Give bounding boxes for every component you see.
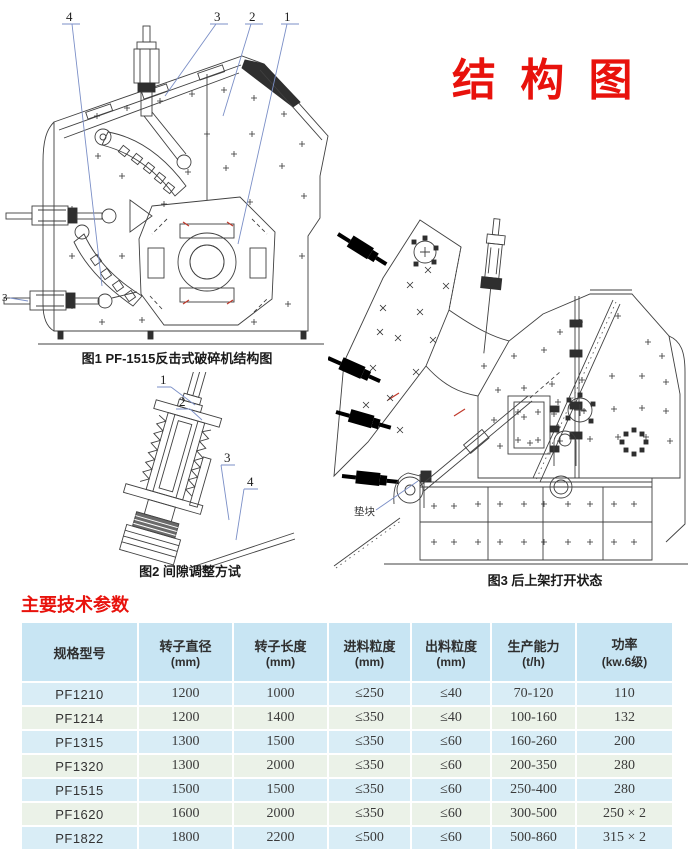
cell-model: PF1210 bbox=[22, 683, 137, 705]
figure3-open-frame-drawing: 垫块 bbox=[328, 190, 690, 570]
column-header-feed-size: 进料粒度 (mm) bbox=[329, 623, 410, 681]
impact-rack-upper bbox=[95, 129, 186, 196]
section-heading: 主要技术参数 bbox=[21, 591, 129, 617]
callout-label: 1 bbox=[284, 9, 291, 24]
figure1-crusher-drawing: 4 3 2 1 3 bbox=[2, 4, 347, 348]
cell-value: ≤350 bbox=[329, 731, 410, 753]
pad-block-callout: 垫块 bbox=[354, 481, 418, 518]
header-unit: (mm) bbox=[234, 655, 327, 669]
center-cylinder bbox=[474, 218, 508, 354]
cell-value: ≤500 bbox=[329, 827, 410, 849]
figure1-callouts: 4 3 2 1 3 bbox=[2, 9, 299, 304]
rotor-assembly bbox=[139, 197, 275, 325]
header-unit: (mm) bbox=[329, 655, 410, 669]
header-title: 功率 bbox=[577, 634, 672, 653]
cell-value: 500-860 bbox=[492, 827, 575, 849]
base-frame bbox=[334, 372, 688, 568]
cell-value: ≤60 bbox=[412, 827, 490, 849]
cell-value: 1500 bbox=[234, 779, 327, 801]
table-row: PF1315 1300 1500 ≤350 ≤60 160-260 200 bbox=[22, 731, 672, 753]
base-pins bbox=[38, 331, 324, 344]
cell-value: ≤350 bbox=[329, 755, 410, 777]
cell-model: PF1214 bbox=[22, 707, 137, 729]
callout-label: 2 bbox=[249, 9, 256, 24]
cell-value: 1500 bbox=[139, 779, 232, 801]
cell-model: PF1822 bbox=[22, 827, 137, 849]
column-header-rotor-diameter: 转子直径 (mm) bbox=[139, 623, 232, 681]
cell-value: 1800 bbox=[139, 827, 232, 849]
cell-value: 160-260 bbox=[492, 731, 575, 753]
specs-table: 规格型号 转子直径 (mm) 转子长度 (mm) 进料粒度 (mm) 出料粒度 bbox=[20, 621, 674, 851]
column-header-power: 功率 (kw.6级) bbox=[577, 623, 672, 681]
page-title: 结 构 图 bbox=[452, 44, 638, 108]
callout-label: 3 bbox=[224, 450, 231, 465]
cell-value: ≤40 bbox=[412, 707, 490, 729]
open-rear-frame-panel bbox=[334, 220, 509, 476]
header-unit: (kw.6级) bbox=[577, 653, 672, 670]
hydraulic-cylinder-upper bbox=[6, 200, 152, 232]
figure3-caption: 图3 后上架打开状态 bbox=[430, 570, 660, 589]
callout-label: 2 bbox=[179, 394, 186, 409]
table-row: PF1620 1600 2000 ≤350 ≤60 300-500 250 × … bbox=[22, 803, 672, 825]
catalog-page: 结 构 图 bbox=[0, 0, 691, 855]
cell-value: ≤350 bbox=[329, 803, 410, 825]
cell-value: ≤250 bbox=[329, 683, 410, 705]
tension-spring-assembly bbox=[134, 26, 191, 169]
red-marks bbox=[388, 393, 465, 416]
impact-rack-lower bbox=[74, 225, 142, 306]
cell-value: ≤40 bbox=[412, 683, 490, 705]
column-header-output-size: 出料粒度 (mm) bbox=[412, 623, 490, 681]
table-header-row: 规格型号 转子直径 (mm) 转子长度 (mm) 进料粒度 (mm) 出料粒度 bbox=[22, 623, 672, 681]
header-title: 生产能力 bbox=[492, 636, 575, 655]
cell-value: 110 bbox=[577, 683, 672, 705]
cell-value: 200 bbox=[577, 731, 672, 753]
adjuster-body bbox=[108, 372, 239, 568]
table-row: PF1320 1300 2000 ≤350 ≤60 200-350 280 bbox=[22, 755, 672, 777]
callout-label: 1 bbox=[160, 372, 167, 387]
cell-value: 315 × 2 bbox=[577, 827, 672, 849]
table-row: PF1214 1200 1400 ≤350 ≤40 100-160 132 bbox=[22, 707, 672, 729]
figure2-callouts: 1 2 3 4 bbox=[157, 372, 258, 540]
cell-value: ≤60 bbox=[412, 803, 490, 825]
cell-value: 280 bbox=[577, 779, 672, 801]
cell-value: 1500 bbox=[234, 731, 327, 753]
cell-value: 132 bbox=[577, 707, 672, 729]
cell-value: 1400 bbox=[234, 707, 327, 729]
cell-value: 250 × 2 bbox=[577, 803, 672, 825]
cell-value: 200-350 bbox=[492, 755, 575, 777]
figure2-caption: 图2 间隙调整方试 bbox=[80, 561, 300, 580]
cell-value: 1300 bbox=[139, 755, 232, 777]
callout-label: 4 bbox=[66, 9, 73, 24]
cell-value: 300-500 bbox=[492, 803, 575, 825]
header-title: 进料粒度 bbox=[329, 636, 410, 655]
cell-model: PF1315 bbox=[22, 731, 137, 753]
cell-value: ≤350 bbox=[329, 779, 410, 801]
header-title: 出料粒度 bbox=[412, 636, 490, 655]
callout-label: 3 bbox=[214, 9, 221, 24]
cell-value: 1000 bbox=[234, 683, 327, 705]
header-unit: (t/h) bbox=[492, 655, 575, 669]
cell-value: 1300 bbox=[139, 731, 232, 753]
column-header-capacity: 生产能力 (t/h) bbox=[492, 623, 575, 681]
cell-value: 1600 bbox=[139, 803, 232, 825]
cell-value: 100-160 bbox=[492, 707, 575, 729]
cell-value: ≤60 bbox=[412, 779, 490, 801]
header-title: 转子直径 bbox=[139, 636, 232, 655]
figure1-caption: 图1 PF-1515反击式破碎机结构图 bbox=[12, 348, 342, 367]
side-cylinders bbox=[328, 228, 399, 488]
table-row: PF1515 1500 1500 ≤350 ≤60 250-400 280 bbox=[22, 779, 672, 801]
cell-model: PF1515 bbox=[22, 779, 137, 801]
cell-value: 280 bbox=[577, 755, 672, 777]
cell-value: 2200 bbox=[234, 827, 327, 849]
cell-model: PF1620 bbox=[22, 803, 137, 825]
header-unit: (mm) bbox=[139, 655, 232, 669]
cell-value: 1200 bbox=[139, 707, 232, 729]
header-title: 规格型号 bbox=[22, 643, 137, 662]
header-title: 转子长度 bbox=[234, 636, 327, 655]
cell-value: 2000 bbox=[234, 755, 327, 777]
cell-model: PF1320 bbox=[22, 755, 137, 777]
table-row: PF1210 1200 1000 ≤250 ≤40 70-120 110 bbox=[22, 683, 672, 705]
callout-label: 4 bbox=[247, 474, 254, 489]
main-frame-panel bbox=[478, 290, 685, 542]
pad-block-label: 垫块 bbox=[354, 505, 375, 518]
cell-value: 2000 bbox=[234, 803, 327, 825]
cell-value: 250-400 bbox=[492, 779, 575, 801]
crusher-housing bbox=[43, 56, 328, 331]
cell-value: ≤60 bbox=[412, 755, 490, 777]
table-row: PF1822 1800 2200 ≤500 ≤60 500-860 315 × … bbox=[22, 827, 672, 849]
callout-label: 3 bbox=[2, 292, 8, 304]
left-panel-x-marks bbox=[363, 267, 449, 433]
column-header-rotor-length: 转子长度 (mm) bbox=[234, 623, 327, 681]
header-unit: (mm) bbox=[412, 655, 490, 669]
cell-value: ≤350 bbox=[329, 707, 410, 729]
rotor-red-marks bbox=[183, 222, 233, 304]
column-header-model: 规格型号 bbox=[22, 623, 137, 681]
figure2-adjuster-drawing: 1 2 3 4 bbox=[85, 372, 295, 572]
cell-value: ≤60 bbox=[412, 731, 490, 753]
cell-value: 70-120 bbox=[492, 683, 575, 705]
cell-value: 1200 bbox=[139, 683, 232, 705]
